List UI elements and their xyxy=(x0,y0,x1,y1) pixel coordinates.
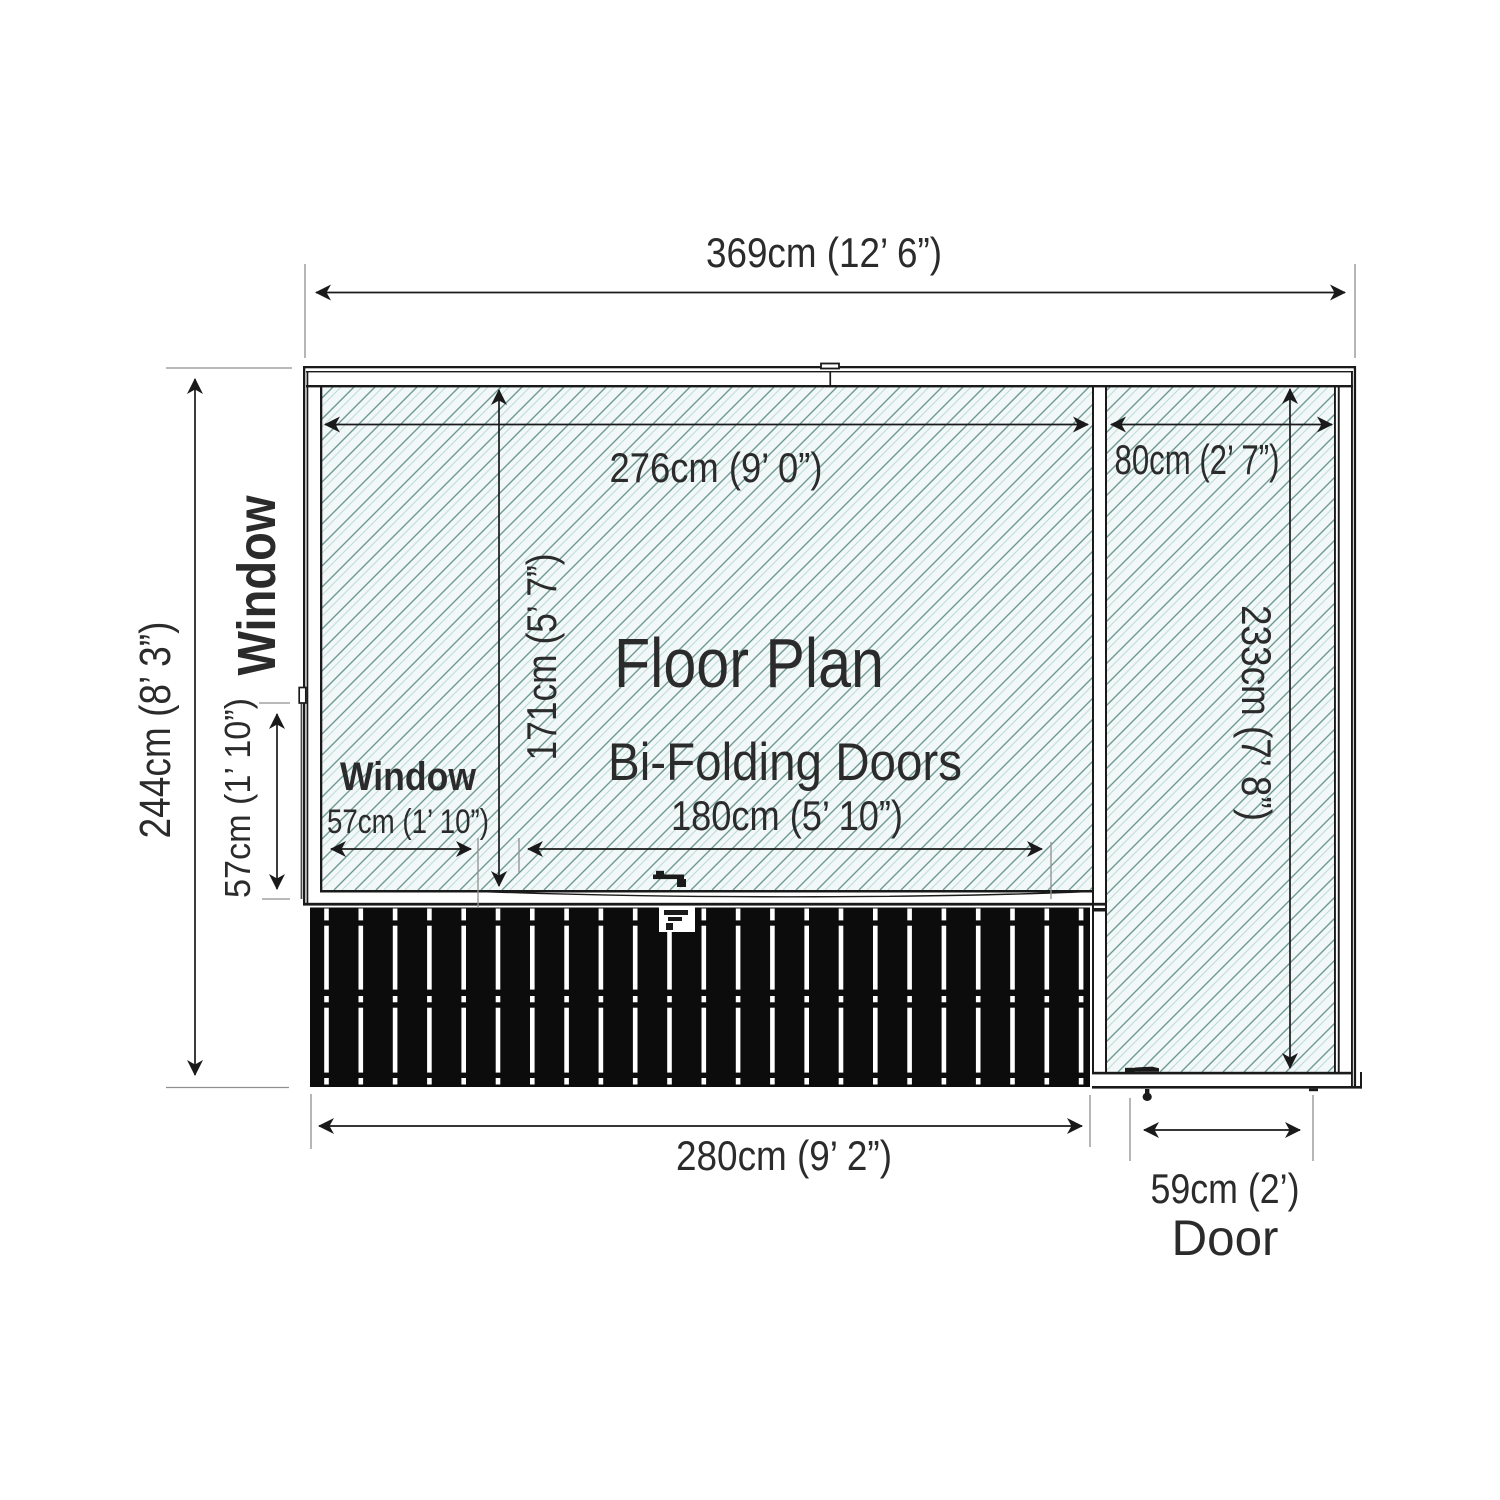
svg-text:233cm (7’ 8”): 233cm (7’ 8”) xyxy=(1233,605,1280,821)
svg-text:Door: Door xyxy=(1172,1210,1279,1266)
svg-text:80cm (2’ 7”): 80cm (2’ 7”) xyxy=(1115,436,1280,483)
svg-text:Window: Window xyxy=(227,495,287,676)
svg-text:180cm (5’ 10”): 180cm (5’ 10”) xyxy=(671,792,903,839)
svg-text:244cm (8’ 3”): 244cm (8’ 3”) xyxy=(131,622,180,839)
svg-text:Window: Window xyxy=(340,755,477,799)
svg-text:57cm (1’ 10”): 57cm (1’ 10”) xyxy=(217,698,258,898)
svg-text:276cm (9’ 0”): 276cm (9’ 0”) xyxy=(610,444,823,491)
svg-text:280cm (9’ 2”): 280cm (9’ 2”) xyxy=(676,1132,892,1179)
svg-text:171cm (5’ 7”): 171cm (5’ 7”) xyxy=(518,554,565,761)
svg-text:Floor Plan: Floor Plan xyxy=(614,624,884,702)
svg-text:59cm (2’): 59cm (2’) xyxy=(1151,1165,1300,1212)
svg-text:Bi-Folding Doors: Bi-Folding Doors xyxy=(608,733,962,792)
svg-text:57cm (1’ 10”): 57cm (1’ 10”) xyxy=(327,803,489,841)
svg-text:369cm (12’ 6”): 369cm (12’ 6”) xyxy=(706,229,942,276)
